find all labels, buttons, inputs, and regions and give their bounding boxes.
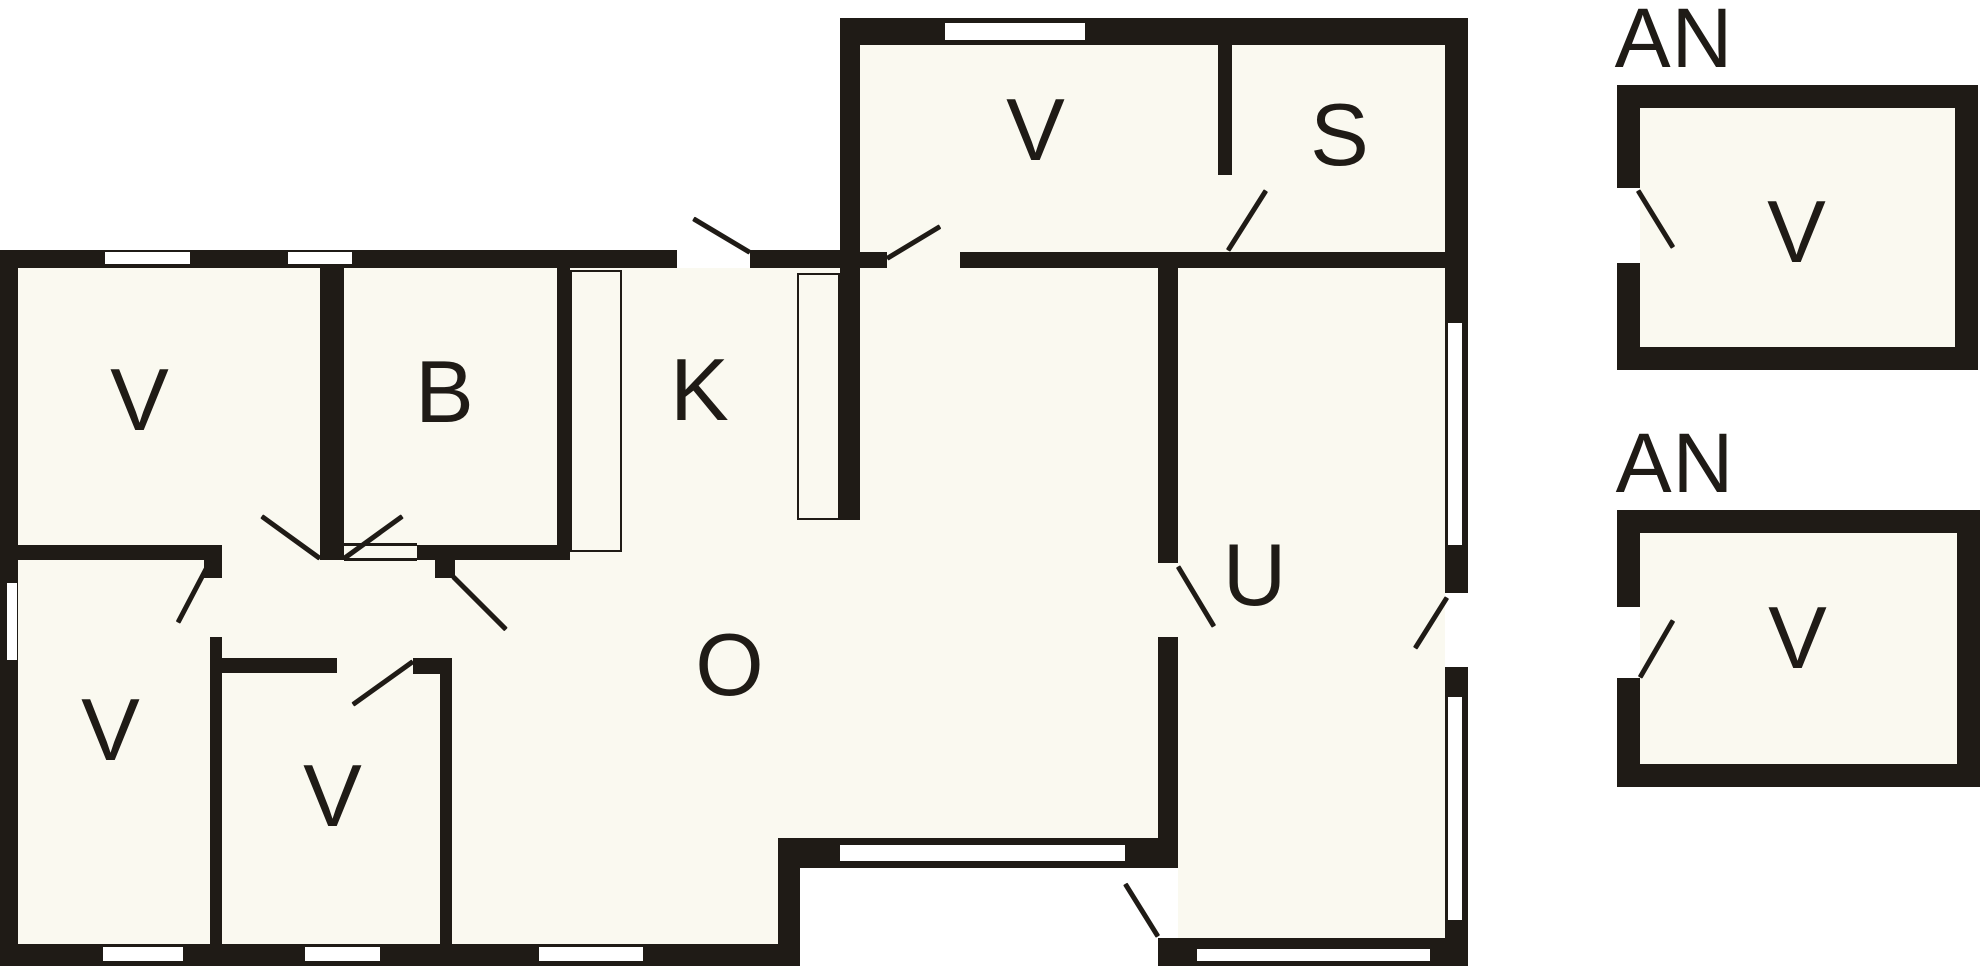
window-top-left-1 [105, 252, 190, 264]
door-swing-porch [1123, 882, 1160, 938]
room-label-s: S [1310, 91, 1370, 179]
upper-wing-top-wall [840, 18, 1468, 45]
window-bottom-2 [305, 947, 380, 961]
room-label-v-lower-left: V [81, 686, 141, 774]
small-v-east-wall [440, 658, 452, 944]
annex1-title: AN [1615, 0, 1734, 80]
upper-wing-bottom-wall [960, 252, 1445, 268]
room-label-o: O [695, 621, 764, 709]
room-label-k: K [670, 346, 730, 434]
b-room-east-wall [557, 268, 570, 560]
room-label-v-annex1: V [1767, 188, 1827, 276]
annex2-left-wall-upper [1617, 510, 1640, 607]
annex1-left-wall-upper [1617, 85, 1640, 188]
window-bottom-1 [103, 947, 183, 961]
window-o-bottom [840, 845, 1125, 861]
room-label-v-upper-wing: V [1006, 86, 1066, 174]
room-label-b: B [415, 348, 475, 436]
window-top-left-2 [288, 252, 352, 264]
hall-wall-west [18, 545, 212, 560]
annex2-left-wall-lower [1617, 678, 1640, 787]
fixture-kitchen-west [570, 270, 622, 552]
right-wall-mid2 [1445, 667, 1468, 697]
vb-partition [320, 268, 344, 560]
annex2-right-wall [1957, 510, 1980, 787]
window-right-1 [1448, 323, 1462, 545]
hall-wall-east [417, 545, 557, 560]
right-wall-top [1445, 18, 1468, 323]
fixture-kitchen-east [797, 273, 840, 520]
small-v-top-wall [222, 658, 337, 673]
room-label-u: U [1223, 531, 1288, 619]
passage-edge-bottom [344, 558, 417, 561]
upper-wing-bottom-wall-stub [860, 252, 887, 268]
annex1-bottom-wall [1617, 347, 1978, 370]
room-label-v-upper-left: V [110, 356, 170, 444]
annex2-title: AN [1616, 421, 1735, 505]
window-left-wall [7, 583, 17, 660]
door-swing-kitchen-exterior [692, 216, 752, 254]
annex1-right-wall [1955, 85, 1978, 370]
step-wall [778, 838, 800, 944]
room-label-v-small: V [303, 752, 363, 840]
window-bottom-3 [539, 947, 643, 961]
floor-main-lower-left [18, 868, 800, 944]
window-right-2 [1448, 697, 1462, 920]
annex1-left-wall-lower [1617, 263, 1640, 370]
room-label-v-annex2: V [1768, 594, 1828, 682]
vs-partition [1218, 45, 1232, 175]
ou-partition-lower [1158, 637, 1178, 868]
annex2-top-wall [1617, 510, 1980, 533]
right-window1-edge-b [1462, 323, 1468, 545]
window-u-bottom [1197, 949, 1430, 961]
right-window2-edge-b [1462, 697, 1468, 920]
annex2-bottom-wall [1617, 764, 1980, 787]
hall-door-post-b [435, 560, 455, 578]
floor-u-lower [1178, 868, 1445, 944]
upper-wing-left-wall [840, 18, 860, 520]
annex1-top-wall [1617, 85, 1978, 108]
window-upper-top [945, 23, 1085, 40]
floor-plan: VBKVSOUVVANVANV [0, 0, 1980, 966]
passage-edge-top [344, 543, 417, 546]
right-wall-mid1 [1445, 545, 1468, 593]
ou-partition-upper [1158, 268, 1178, 563]
lower-v-east-wall [210, 637, 222, 944]
